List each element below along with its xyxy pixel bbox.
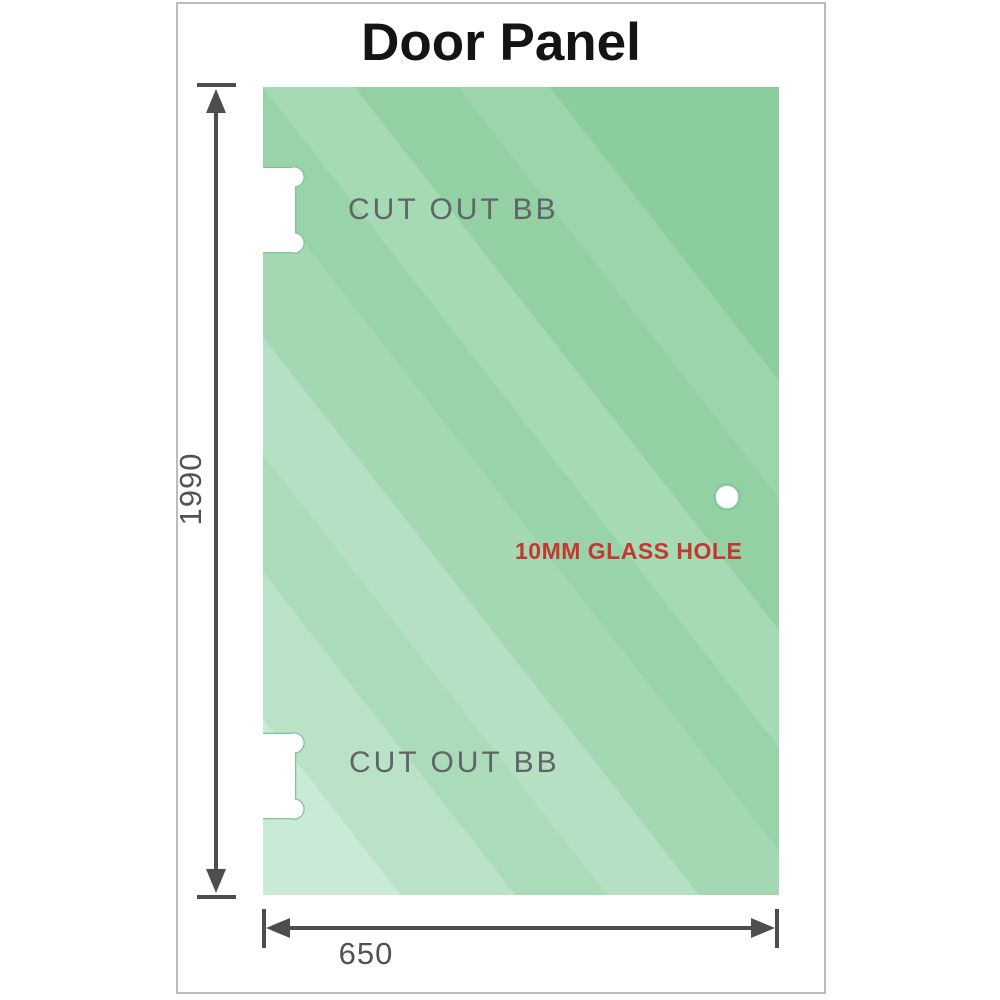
height-dimension-label: 1990 [174, 424, 208, 554]
cutout-bottom-label: CUT OUT BB [349, 746, 560, 780]
page-title: Door Panel [176, 13, 826, 73]
width-dimension-label: 650 [316, 937, 416, 971]
cutout-top-label: CUT OUT BB [348, 193, 559, 227]
glass-hole-label: 10MM GLASS HOLE [515, 538, 742, 565]
